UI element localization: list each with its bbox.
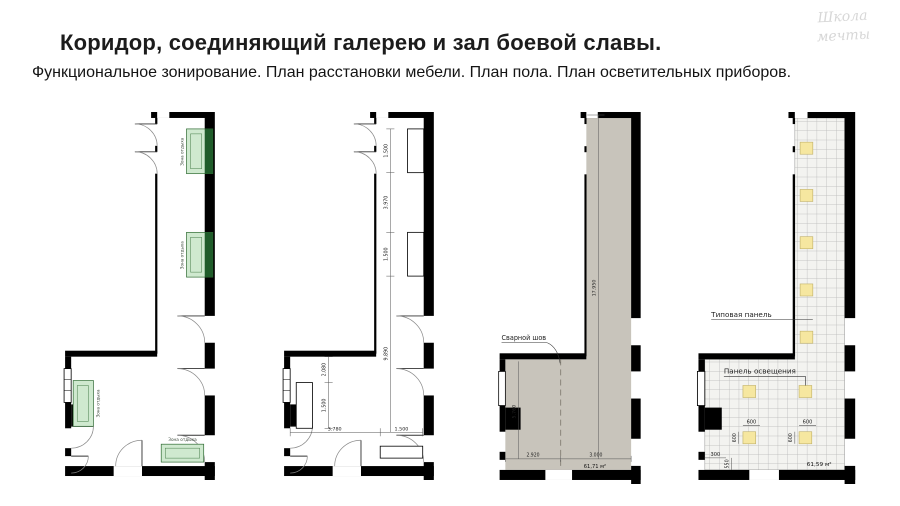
dim-bench3: 1.500 [322, 399, 328, 413]
school-of-dreams-logo: Школа мечты [805, 6, 881, 48]
page-title: Коридор, соединяющий галерею и зал боево… [60, 30, 661, 56]
rest-zone-label: Зона отдыха [179, 241, 184, 269]
plan-zoning: Зона отдыха Зона отдыха Зона отдыха Зона… [57, 112, 229, 480]
light-panel [800, 284, 813, 296]
dim-edge: 550 [725, 459, 731, 468]
rest-zone-bench-1: Зона отдыха [179, 129, 212, 174]
rest-zone-bench-4: Зона отдыха [161, 437, 203, 462]
dim-right: 3.000 [589, 452, 602, 458]
dim-panel-w1: 600 [747, 420, 757, 426]
dim-bench2: 1.500 [383, 247, 389, 261]
dim-bench1: 1.500 [383, 144, 389, 158]
dim-bench4: 1.500 [395, 426, 409, 432]
rest-zone-label: Зона отдыха [168, 437, 197, 442]
window [499, 371, 506, 405]
rest-zone-bench-2: Зона отдыха [179, 232, 212, 277]
light-panel [743, 385, 756, 397]
plan-furniture: 1.500 3.970 1.500 9.890 2.080 1.500 3.78… [276, 112, 448, 480]
light-panel [799, 385, 812, 397]
area-label: 61,59 м² [807, 461, 832, 468]
light-panel [800, 142, 813, 154]
light-panel [799, 432, 812, 444]
window [283, 369, 290, 403]
plan-lighting-drawing: Типовая панель Панель освещения 600 600 … [690, 112, 870, 484]
light-panel-label: Панель освещения [724, 367, 796, 376]
dim-panel-h1: 600 [732, 433, 738, 442]
dim-offset: 300 [711, 452, 721, 458]
weld-seam-label: Сварной шов [502, 334, 547, 342]
rest-zone-label: Зона отдыха [95, 389, 100, 417]
page-subtitle: Функциональное зонирование. План расстан… [32, 64, 791, 82]
rest-zone-bench-3: Зона отдыха [73, 381, 100, 427]
window [64, 369, 71, 403]
dim-panel-w2: 600 [803, 420, 813, 426]
plan-furniture-drawing: 1.500 3.970 1.500 9.890 2.080 1.500 3.78… [276, 112, 448, 480]
light-panel [800, 189, 813, 201]
plan-floor: Сварной шов 17.950 5.760 2.920 3.000 61,… [492, 112, 654, 484]
plan-lighting: Типовая панель Панель освещения 600 600 … [690, 112, 870, 484]
dim-left: 2.920 [526, 452, 539, 458]
plan-zoning-drawing: Зона отдыха Зона отдыха Зона отдыха Зона… [57, 112, 229, 480]
dim-corridor: 9.890 [383, 347, 389, 361]
rest-zone-label: Зона отдыха [179, 137, 184, 165]
dim-span: 3.780 [328, 426, 342, 432]
light-panel [800, 237, 813, 249]
light-panel [800, 331, 813, 343]
dim-height: 5.760 [511, 405, 517, 419]
benches [296, 129, 423, 458]
dim-offset: 2.080 [322, 363, 328, 377]
dim-panel-h2: 600 [788, 433, 794, 442]
window [697, 371, 704, 405]
light-panel [743, 432, 756, 444]
floor-surface [505, 118, 631, 470]
typical-panel-label: Типовая панель [710, 310, 772, 319]
dim-gap: 3.970 [383, 196, 389, 210]
slide: Коридор, соединяющий галерею и зал боево… [0, 0, 900, 506]
plan-floor-drawing: Сварной шов 17.950 5.760 2.920 3.000 61,… [492, 112, 654, 484]
ceiling-grid [705, 118, 845, 470]
area-label: 61,71 м² [584, 463, 606, 470]
dim-length: 17.950 [592, 280, 598, 297]
